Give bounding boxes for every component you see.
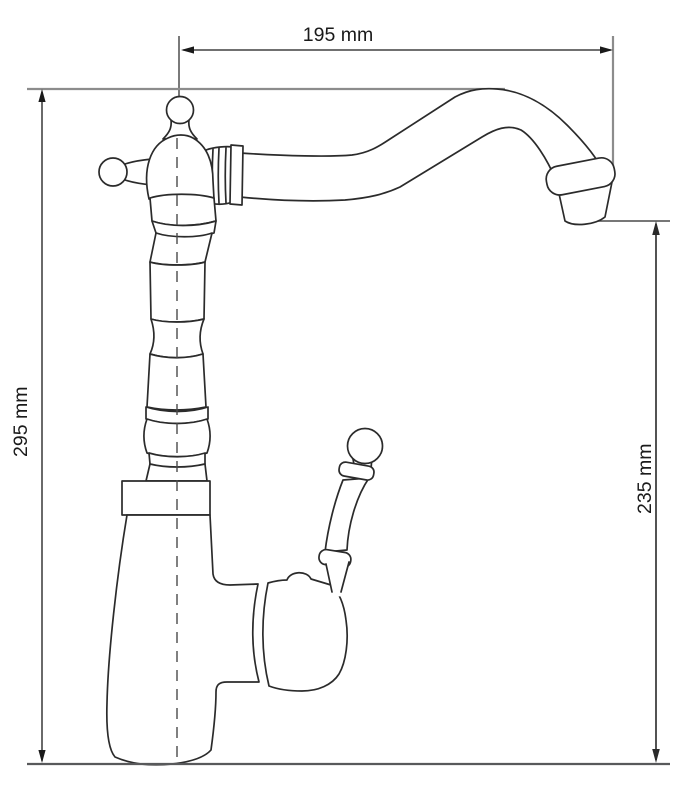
cross-handle-ball: [99, 158, 127, 186]
dimension-top-width: 195 mm: [181, 24, 613, 54]
column-segment-2: [147, 354, 206, 410]
spout-joint-cap: [230, 145, 243, 205]
arrowhead-right-icon: [600, 46, 613, 53]
dimension-overall-height: 295 mm: [10, 89, 46, 763]
drawing-svg: 195 mm 295 mm 235 mm: [0, 0, 689, 800]
arrowhead-left-icon: [181, 46, 194, 53]
base-body: [107, 515, 259, 765]
column-neck: [150, 233, 212, 265]
dimension-label-spout-height: 235 mm: [634, 444, 656, 514]
valve-skirt: [150, 194, 216, 225]
arrowhead-up-icon: [38, 89, 45, 102]
lever-grip: [325, 478, 369, 552]
base-collar: [122, 481, 210, 515]
dimension-spout-height: 235 mm: [634, 221, 660, 763]
finial-ball: [167, 97, 194, 124]
arrowhead-down-icon: [652, 749, 660, 763]
lever-ball: [348, 429, 383, 464]
arrowhead-up-icon: [652, 221, 660, 235]
dimension-label-top-width: 195 mm: [303, 24, 373, 46]
valve-head: [147, 135, 214, 199]
faucet-dimension-drawing: 195 mm 295 mm 235 mm: [0, 0, 689, 800]
arrowhead-down-icon: [38, 750, 45, 763]
dimension-label-overall-height: 295 mm: [10, 387, 32, 457]
